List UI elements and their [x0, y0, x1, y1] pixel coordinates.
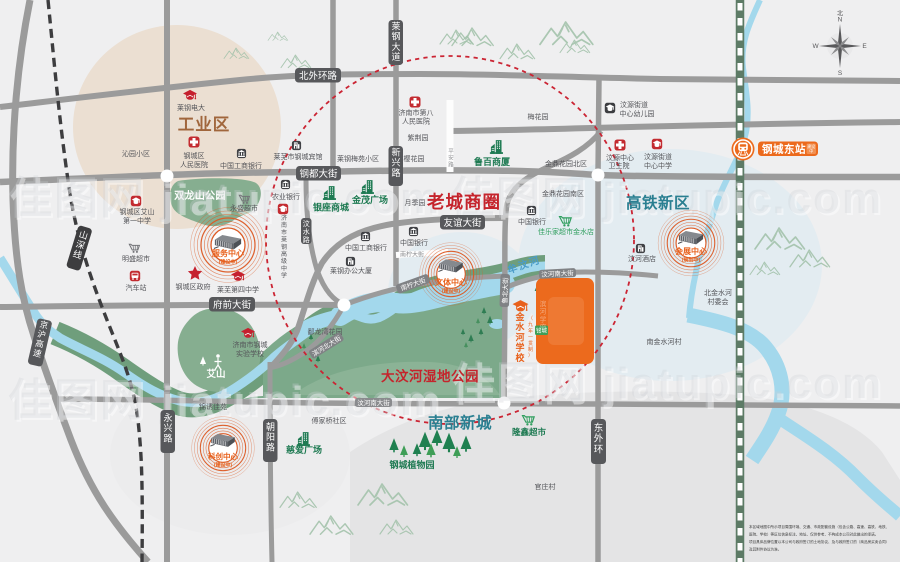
svg-text:汶河酒店: 汶河酒店	[628, 254, 656, 263]
svg-text:汶水路: 汶水路	[303, 219, 310, 244]
svg-text:金水河学校: 金水河学校	[514, 311, 525, 363]
svg-text:高铁新区: 高铁新区	[626, 193, 690, 212]
svg-text:村委会: 村委会	[708, 297, 729, 306]
svg-text:新兴路: 新兴路	[391, 147, 400, 178]
svg-text:汶源中心: 汶源中心	[606, 153, 634, 162]
svg-text:南柠大街: 南柠大街	[400, 251, 424, 259]
svg-text:济南市莱钢高级中学: 济南市莱钢高级中学	[281, 214, 287, 280]
svg-text:钢城区政府: 钢城区政府	[176, 282, 211, 291]
svg-text:南金水河村: 南金水河村	[647, 337, 682, 346]
svg-text:钢城区艾山: 钢城区艾山	[120, 207, 155, 216]
svg-text:W: W	[812, 43, 819, 50]
svg-text:(规划中): (规划中)	[682, 257, 701, 264]
svg-text:N: N	[838, 17, 843, 24]
svg-text:滨河学府: 滨河学府	[540, 299, 547, 331]
svg-text:中国银行: 中国银行	[518, 217, 546, 226]
svg-text:及其附件协议为准。: 及其附件协议为准。	[749, 547, 781, 552]
svg-text:永盛超市: 永盛超市	[230, 204, 258, 213]
svg-text:莱芜第四中学: 莱芜第四中学	[217, 285, 259, 294]
svg-text:服务中心: 服务中心	[212, 248, 244, 258]
svg-text:莱钢梅苑小区: 莱钢梅苑小区	[337, 154, 379, 163]
svg-text:紫荆园: 紫荆园	[408, 133, 429, 142]
svg-text:人民医院: 人民医院	[180, 160, 208, 169]
svg-text:沁园小区: 沁园小区	[122, 149, 150, 158]
svg-text:南部新城: 南部新城	[428, 413, 492, 432]
svg-text:佳图网 jiatupic.com: 佳图网 jiatupic.com	[450, 359, 883, 408]
svg-text:傅家桥社区: 傅家桥社区	[312, 416, 347, 425]
svg-text:文体中心: 文体中心	[435, 277, 467, 287]
svg-text:钢城植物园: 钢城植物园	[389, 459, 434, 470]
svg-text:官庄村: 官庄村	[535, 482, 556, 491]
svg-text:中国银行: 中国银行	[400, 238, 428, 247]
svg-text:工业区: 工业区	[178, 115, 231, 134]
svg-text:平安路: 平安路	[448, 148, 454, 168]
svg-text:东外环: 东外环	[594, 422, 604, 455]
svg-text:汶源街道: 汶源街道	[644, 152, 672, 161]
svg-text:汽车站: 汽车站	[126, 283, 147, 292]
svg-text:中心幼儿园: 中心幼儿园	[620, 109, 655, 118]
svg-text:项目具体品牌位置以本公司与政府签订的土地协议、及与政府签订的: 项目具体品牌位置以本公司与政府签订的土地协议、及与政府签订的（商品房买卖合同）	[749, 539, 889, 544]
svg-text:卫生院: 卫生院	[609, 161, 630, 170]
svg-text:中心中学: 中心中学	[644, 161, 672, 170]
svg-text:莱芜市钢城宾馆: 莱芜市钢城宾馆	[274, 152, 323, 161]
svg-text:(建设中): (建设中)	[219, 259, 238, 266]
svg-text:银座商城: 银座商城	[313, 202, 349, 213]
svg-text:实验学校: 实验学校	[236, 349, 264, 358]
svg-text:本区域地图中所示项目周围环境、交通、市政配套设施（包含公路、: 本区域地图中所示项目周围环境、交通、市政配套设施（包含公路、高速、高铁、地铁、	[749, 524, 889, 529]
svg-text:北: 北	[837, 10, 843, 18]
svg-text:金鼎花园北区: 金鼎花园北区	[545, 159, 587, 168]
svg-text:府前大街: 府前大街	[213, 299, 252, 311]
svg-text:汶源街道: 汶源街道	[620, 100, 648, 109]
svg-text:汶河南大街: 汶河南大街	[357, 398, 390, 407]
svg-text:(建设中): (建设中)	[214, 462, 233, 469]
svg-text:友谊大街: 友谊大街	[443, 217, 482, 229]
svg-text:医院、学校）等区位信息标注、地址、仅供参考、不构成本公司对此: 医院、学校）等区位信息标注、地址、仅供参考、不构成本公司对此做出的承诺。	[749, 532, 878, 537]
svg-text:人民医院: 人民医院	[402, 117, 430, 126]
svg-text:老城商圈: 老城商圈	[426, 192, 501, 212]
svg-text:鲁百商厦: 鲁百商厦	[474, 156, 511, 167]
svg-text:莱钢电大: 莱钢电大	[177, 103, 205, 112]
svg-text:第一中学: 第一中学	[123, 216, 151, 225]
svg-text:朝阳路: 朝阳路	[266, 422, 275, 452]
svg-text:梅花园: 梅花园	[528, 112, 549, 121]
svg-text:樱花园: 樱花园	[404, 154, 425, 163]
svg-text:农业银行: 农业银行	[272, 192, 300, 201]
svg-text:永兴路: 永兴路	[163, 412, 172, 443]
svg-text:中: 中	[809, 148, 813, 154]
svg-text:锦诱佳苑: 锦诱佳苑	[199, 402, 227, 411]
svg-text:(建设中): (建设中)	[442, 288, 461, 295]
svg-text:金茂广场: 金茂广场	[351, 194, 388, 205]
svg-text:月季园: 月季园	[405, 198, 426, 207]
svg-text:佳乐家超市金水店: 佳乐家超市金水店	[538, 227, 594, 236]
svg-text:科创中心: 科创中心	[208, 451, 238, 461]
svg-text:北外环路: 北外环路	[299, 70, 338, 82]
svg-text:钢城区: 钢城区	[184, 151, 205, 160]
svg-text:中国工商银行: 中国工商银行	[220, 161, 262, 170]
svg-text:金鼎花园南区: 金鼎花园南区	[542, 189, 584, 198]
svg-text:济南市第八: 济南市第八	[399, 108, 434, 117]
svg-text:北金水河: 北金水河	[704, 288, 732, 297]
svg-text:会展中心: 会展中心	[675, 246, 707, 256]
svg-text:E: E	[862, 43, 867, 50]
svg-text:钢都大街: 钢都大街	[299, 168, 338, 180]
svg-text:明盛超市: 明盛超市	[122, 254, 150, 263]
svg-text:（九年一贯制）: （九年一贯制）	[528, 316, 533, 359]
svg-text:钢城东站: 钢城东站	[762, 143, 806, 156]
svg-text:莱钢办公大厦: 莱钢办公大厦	[330, 266, 372, 275]
svg-text:中国工商银行: 中国工商银行	[345, 243, 387, 252]
svg-text:慈爱广场: 慈爱广场	[286, 444, 322, 455]
svg-text:大汶河湿地公园: 大汶河湿地公园	[381, 368, 479, 384]
svg-text:S: S	[838, 70, 843, 77]
svg-text:莱钢大道: 莱钢大道	[391, 21, 400, 63]
svg-text:济南市钢城: 济南市钢城	[233, 340, 268, 349]
svg-text:隆鑫超市: 隆鑫超市	[512, 427, 547, 437]
